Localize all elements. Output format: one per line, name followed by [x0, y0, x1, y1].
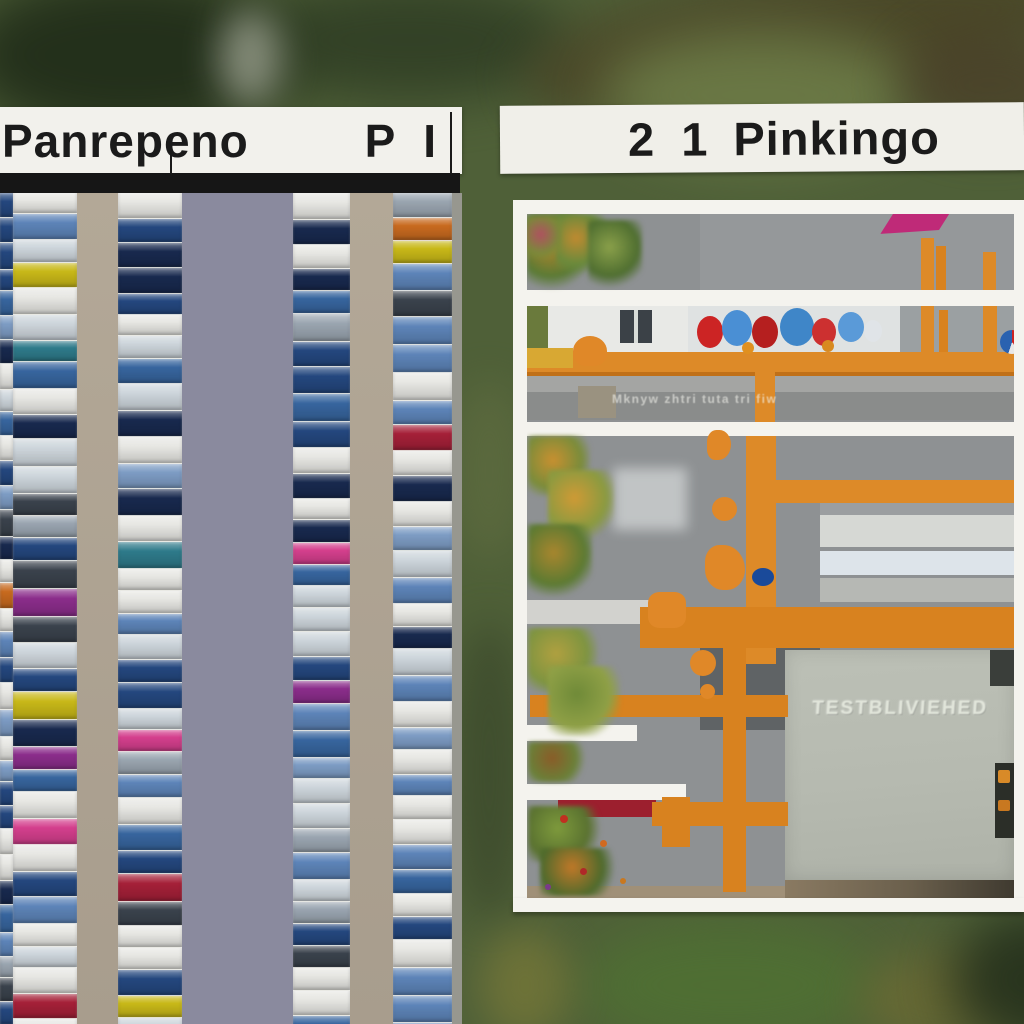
frame-left-edge [513, 200, 527, 912]
window-building-strip-mid [820, 551, 1014, 575]
crane-post [921, 238, 934, 290]
paint-dot-orange [742, 342, 754, 354]
image-canvas: TESTBLIVIEHED Mknyw zhtri tuta tri fiw P… [0, 0, 1024, 1024]
window-building-strip-low [820, 578, 1014, 602]
building-base-strip [785, 880, 1014, 898]
right-caption-text: Pinkingo [733, 109, 940, 165]
building-dark-corner [990, 650, 1014, 686]
left-caption-band: Panrepeno P I [0, 107, 462, 174]
crane-post [939, 310, 948, 353]
robot-arm [705, 545, 745, 590]
tree [548, 666, 620, 736]
right-caption-number: 2 1 [628, 111, 708, 167]
inset-orange-mark-1 [998, 770, 1010, 783]
flower-dot [620, 878, 626, 884]
window-building-gap [820, 503, 1014, 515]
gantry-horizontal-beam [776, 480, 1014, 503]
blue-barrel [752, 568, 774, 586]
row1-pavement-shade [700, 214, 1014, 290]
pipe-elbow [662, 797, 690, 847]
frame-top-edge [513, 200, 1024, 214]
yellow-machine [527, 348, 573, 368]
inset-orange-mark-2 [998, 800, 1010, 811]
crane-post [921, 306, 934, 353]
window-building-strip-top [820, 515, 1014, 547]
paint-blob-blue [780, 308, 814, 346]
row3-sheen [613, 468, 687, 530]
row2-yellow-speckle-patch [578, 386, 616, 418]
frame-bottom-edge [513, 898, 1024, 912]
cone-blob [690, 650, 716, 676]
left-caption-code: P I [365, 114, 436, 168]
paint-blob-red [752, 316, 778, 348]
right-caption-band: 2 1 Pinkingo [500, 102, 1024, 174]
flower-dot [560, 815, 568, 823]
paint-blob-red [697, 316, 723, 348]
machinery-beam [640, 607, 1014, 648]
flower-dot [545, 884, 551, 890]
left-caption-text: Panrepeno [0, 114, 249, 168]
left-band-divider-line [170, 140, 172, 174]
row2-window-slat [634, 310, 638, 343]
paint-blob-white [864, 320, 882, 342]
crane-post [936, 246, 946, 290]
building-rooftop-text: TESTBLIVIEHED [799, 698, 1001, 720]
notch-band-2 [513, 784, 686, 800]
paint-dot-orange [822, 340, 834, 352]
left-band-edge-line [450, 112, 452, 174]
digger [648, 592, 686, 628]
frame-right-edge [1014, 200, 1024, 912]
tree [527, 216, 561, 262]
cone-blob [712, 497, 737, 521]
paint-blob-blue [838, 312, 864, 342]
rail-blob [573, 336, 607, 366]
crane-post [983, 252, 996, 290]
pipe-vertical [723, 640, 746, 892]
row2-building-wall [548, 306, 690, 352]
paint-blob-blue [722, 310, 752, 346]
bush [528, 742, 588, 782]
row2-green-patch [527, 306, 549, 352]
cone-blob [700, 684, 715, 699]
divider-band-2 [513, 422, 1014, 436]
flower-dot [580, 868, 587, 875]
tree [528, 524, 592, 596]
road-marking-text: Mknyw zhtri tuta tri fiw [612, 392, 777, 406]
tree [588, 220, 642, 288]
flower-dot [600, 840, 607, 847]
left-caption-underline-bar [0, 173, 460, 193]
divider-band-1 [513, 290, 1014, 306]
row3-left-gray-band [527, 600, 655, 624]
big-gray-building [785, 650, 1014, 880]
